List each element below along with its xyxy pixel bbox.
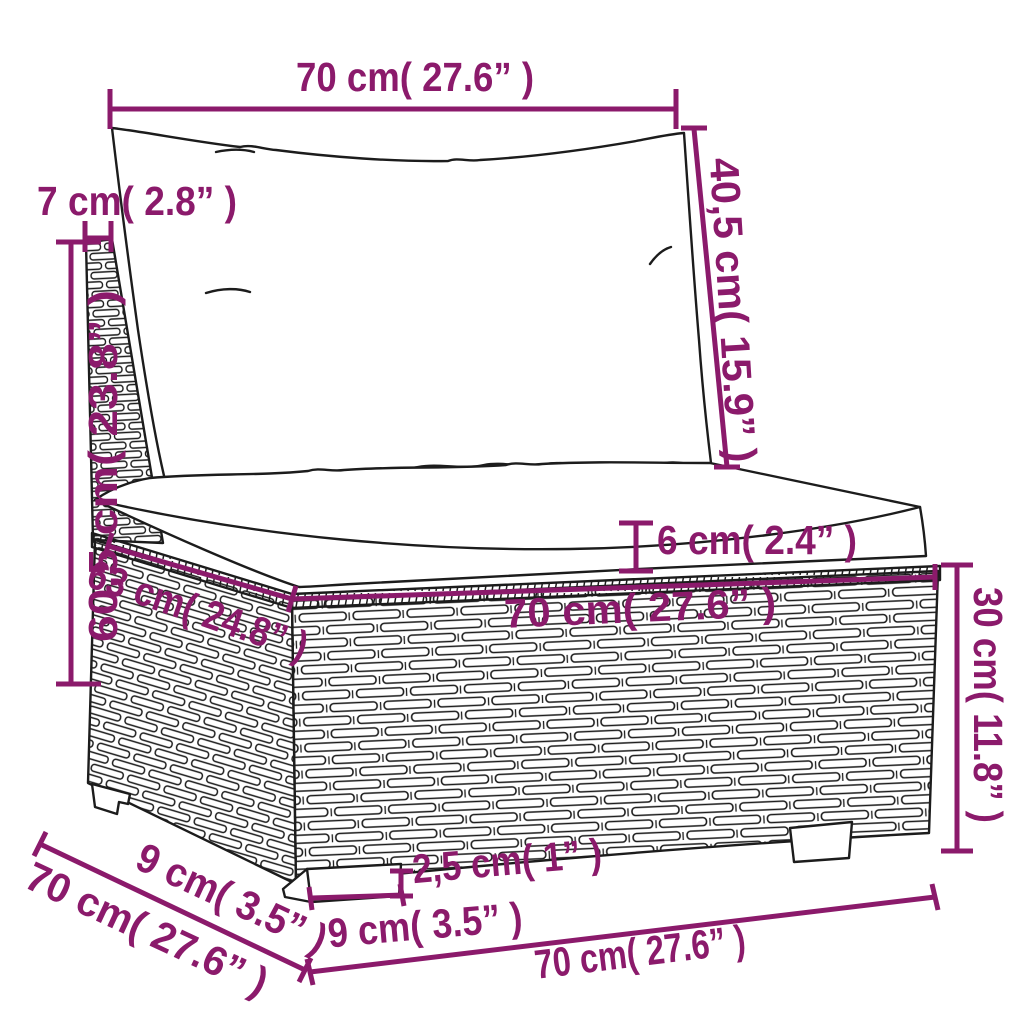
sofa-dimension-drawing: 70 cm( 27.6” ) 7 cm( 2.8” ) 40,5 cm( 15.…	[0, 0, 1024, 1024]
dim-label-back-post-width: 7 cm( 2.8” )	[37, 178, 237, 224]
dim-label-cushion-thickness: 6 cm( 2.4” )	[657, 517, 857, 563]
dim-label-back-cushion-width: 70 cm( 27.6” )	[296, 54, 534, 100]
dim-label-base-height: 30 cm( 11.8” )	[965, 587, 1011, 823]
dimension-line	[312, 895, 403, 898]
leg-front-right	[790, 822, 852, 862]
tick	[309, 887, 312, 910]
dimension-diagram: 70 cm( 27.6” ) 7 cm( 2.8” ) 40,5 cm( 15.…	[0, 0, 1024, 1024]
